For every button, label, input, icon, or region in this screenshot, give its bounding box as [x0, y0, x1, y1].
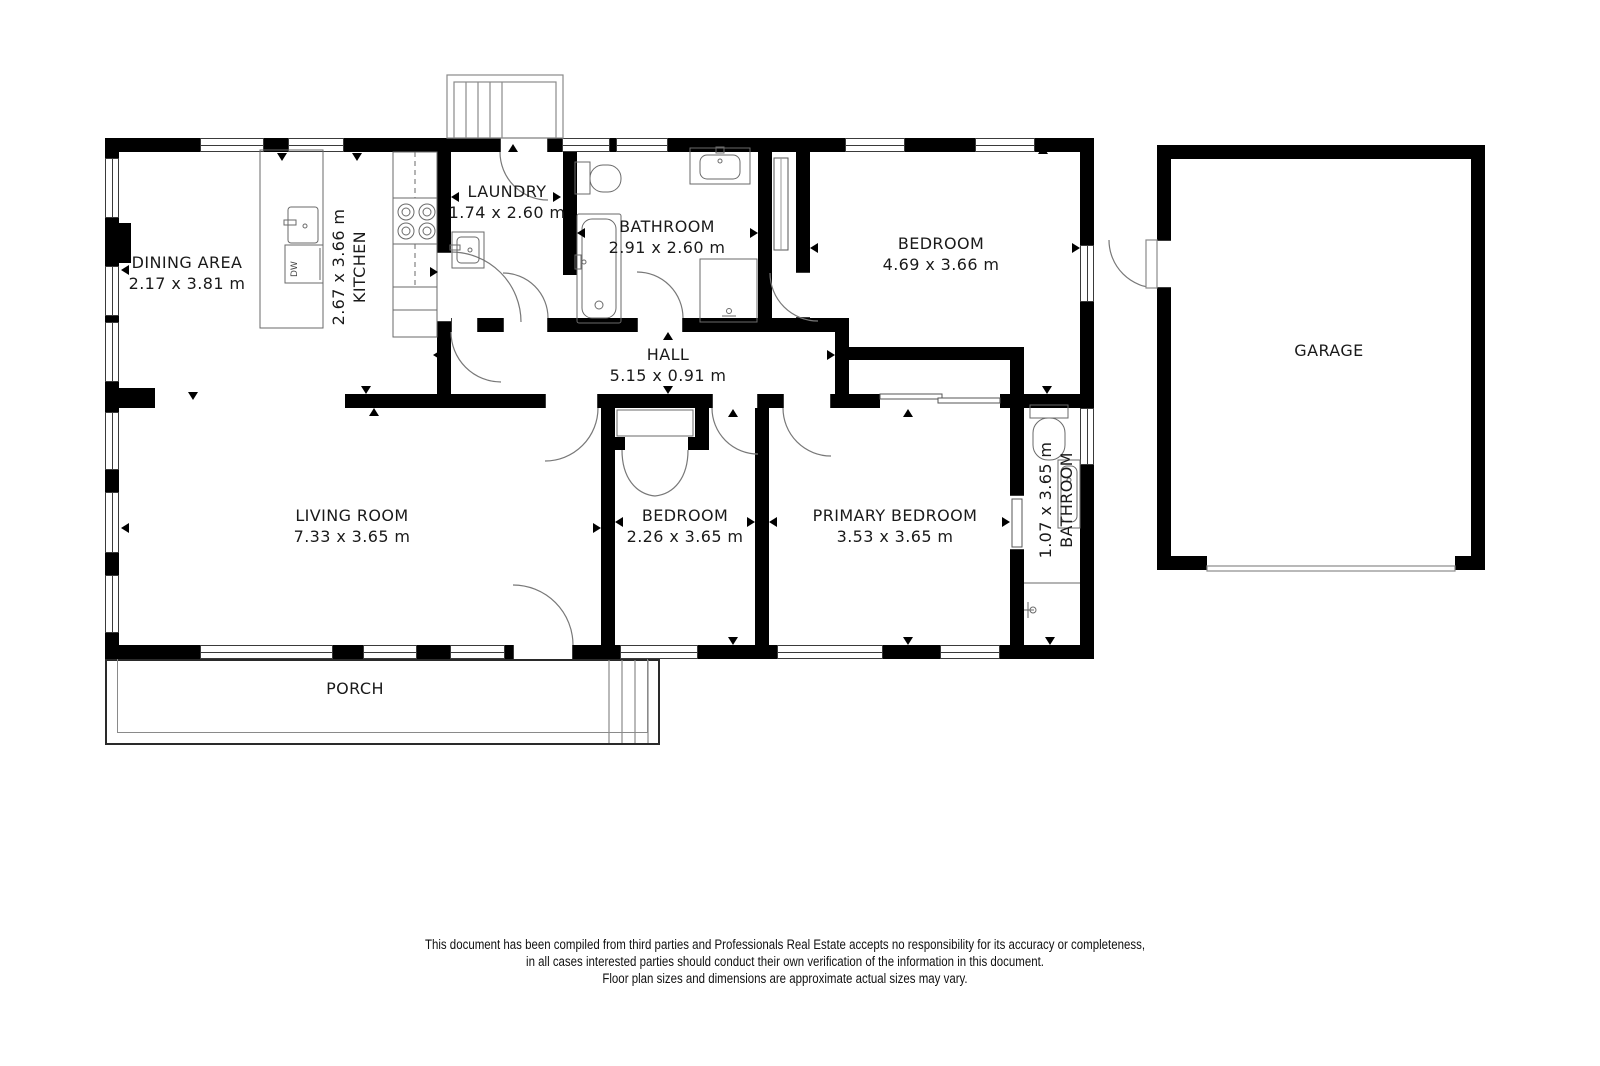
bathtub-drain: [595, 301, 603, 309]
room-label-dining: DINING AREA 2.17 x 3.81 m: [37, 252, 337, 294]
room-name: PORCH: [205, 678, 505, 699]
room-dims: 7.33 x 3.65 m: [202, 526, 502, 547]
room-name: KITCHEN: [349, 231, 370, 303]
garage-roller-door: [1207, 566, 1455, 571]
arrow-down-icon: [188, 392, 198, 400]
faucet-dot: [303, 224, 307, 228]
burner-icon: [402, 227, 410, 235]
faucet-dot: [468, 248, 472, 252]
burner-icon: [398, 223, 414, 239]
arrow-down-icon: [352, 153, 362, 161]
door-arc: [770, 273, 818, 321]
disclaimer-line: This document has been compiled from thi…: [360, 936, 1210, 953]
porch-steps: [609, 660, 648, 743]
shower-valve-dot: [727, 309, 732, 314]
room-name: GARAGE: [1179, 340, 1479, 361]
door-arc: [637, 272, 683, 318]
rear-steps: [447, 75, 563, 138]
arrow-left-icon: [121, 523, 129, 533]
sliding-door-panel: [938, 398, 1000, 403]
arrow-up-icon: [728, 409, 738, 417]
room-dims: 2.91 x 2.60 m: [517, 237, 817, 258]
arrow-left-icon: [433, 350, 441, 360]
room-label-garage: GARAGE: [1179, 340, 1479, 361]
arrow-down-icon: [1045, 637, 1055, 645]
arrow-down-icon: [361, 386, 371, 394]
room-name: HALL: [518, 344, 818, 365]
room-name: BATHROOM: [517, 216, 817, 237]
room-label-hall: HALL 5.15 x 0.91 m: [518, 344, 818, 386]
room-label-ensuite: 1.07 x 3.65 m BATHROOM: [1035, 415, 1077, 585]
room-dims: 1.07 x 3.65 m: [1035, 442, 1056, 559]
sliding-door-panel: [880, 394, 942, 399]
arrow-up-icon: [508, 144, 518, 152]
garage-side-door-leaf: [1146, 240, 1157, 288]
arrow-up-icon: [663, 332, 673, 340]
burner-icon: [419, 223, 435, 239]
room-name: BEDROOM: [791, 233, 1091, 254]
room-label-bathroom: BATHROOM 2.91 x 2.60 m: [517, 216, 817, 258]
room-label-porch: PORCH: [205, 678, 505, 699]
floor-plan-canvas: DW: [0, 0, 1600, 1066]
arrow-up-icon: [903, 409, 913, 417]
room-dims: 5.15 x 0.91 m: [518, 365, 818, 386]
door-arc: [451, 332, 501, 382]
door-arc: [503, 273, 548, 318]
closet-door-arc: [655, 450, 688, 496]
arrow-down-icon: [663, 386, 673, 394]
arrow-right-icon: [827, 350, 835, 360]
garage-doors: [1146, 240, 1455, 571]
room-name: LAUNDRY: [357, 181, 657, 202]
room-dims: 2.67 x 3.66 m: [328, 209, 349, 326]
bathtub-tap-dot: [582, 260, 586, 264]
room-dims: 3.53 x 3.65 m: [745, 526, 1045, 547]
closet-box: [617, 410, 693, 436]
closet-door-arc: [622, 450, 655, 496]
arrow-down-icon: [903, 637, 913, 645]
door-arc: [545, 408, 598, 461]
room-label-primary-bedroom: PRIMARY BEDROOM 3.53 x 3.65 m: [745, 505, 1045, 547]
room-label-bedroom-rear: BEDROOM 4.69 x 3.66 m: [791, 233, 1091, 275]
laundry-fixtures: [450, 232, 484, 268]
disclaimer-line: Floor plan sizes and dimensions are appr…: [360, 970, 1210, 987]
shower-stall: [700, 259, 757, 322]
room-dims: 2.17 x 3.81 m: [37, 273, 337, 294]
steps-outline: [447, 75, 563, 138]
disclaimer-line: in all cases interested parties should c…: [360, 953, 1210, 970]
room-dims: 4.69 x 3.66 m: [791, 254, 1091, 275]
burner-icon: [423, 227, 431, 235]
faucet-icon: [284, 220, 296, 225]
room-name: LIVING ROOM: [202, 505, 502, 526]
room-name: BATHROOM: [1056, 452, 1077, 548]
arrow-down-icon: [1042, 386, 1052, 394]
arrow-up-icon: [1038, 146, 1048, 154]
room-name: DINING AREA: [37, 252, 337, 273]
arrow-up-icon: [369, 408, 379, 416]
room-name: PRIMARY BEDROOM: [745, 505, 1045, 526]
kitchen-island: [260, 150, 323, 328]
disclaimer-text: This document has been compiled from thi…: [285, 936, 1285, 987]
steps-inner: [454, 82, 556, 138]
door-arc: [783, 408, 831, 456]
room-label-living: LIVING ROOM 7.33 x 3.65 m: [202, 505, 502, 547]
arrow-down-icon: [728, 637, 738, 645]
door-arc: [513, 585, 573, 645]
faucet-dot: [718, 159, 722, 163]
arrow-down-icon: [277, 153, 287, 161]
